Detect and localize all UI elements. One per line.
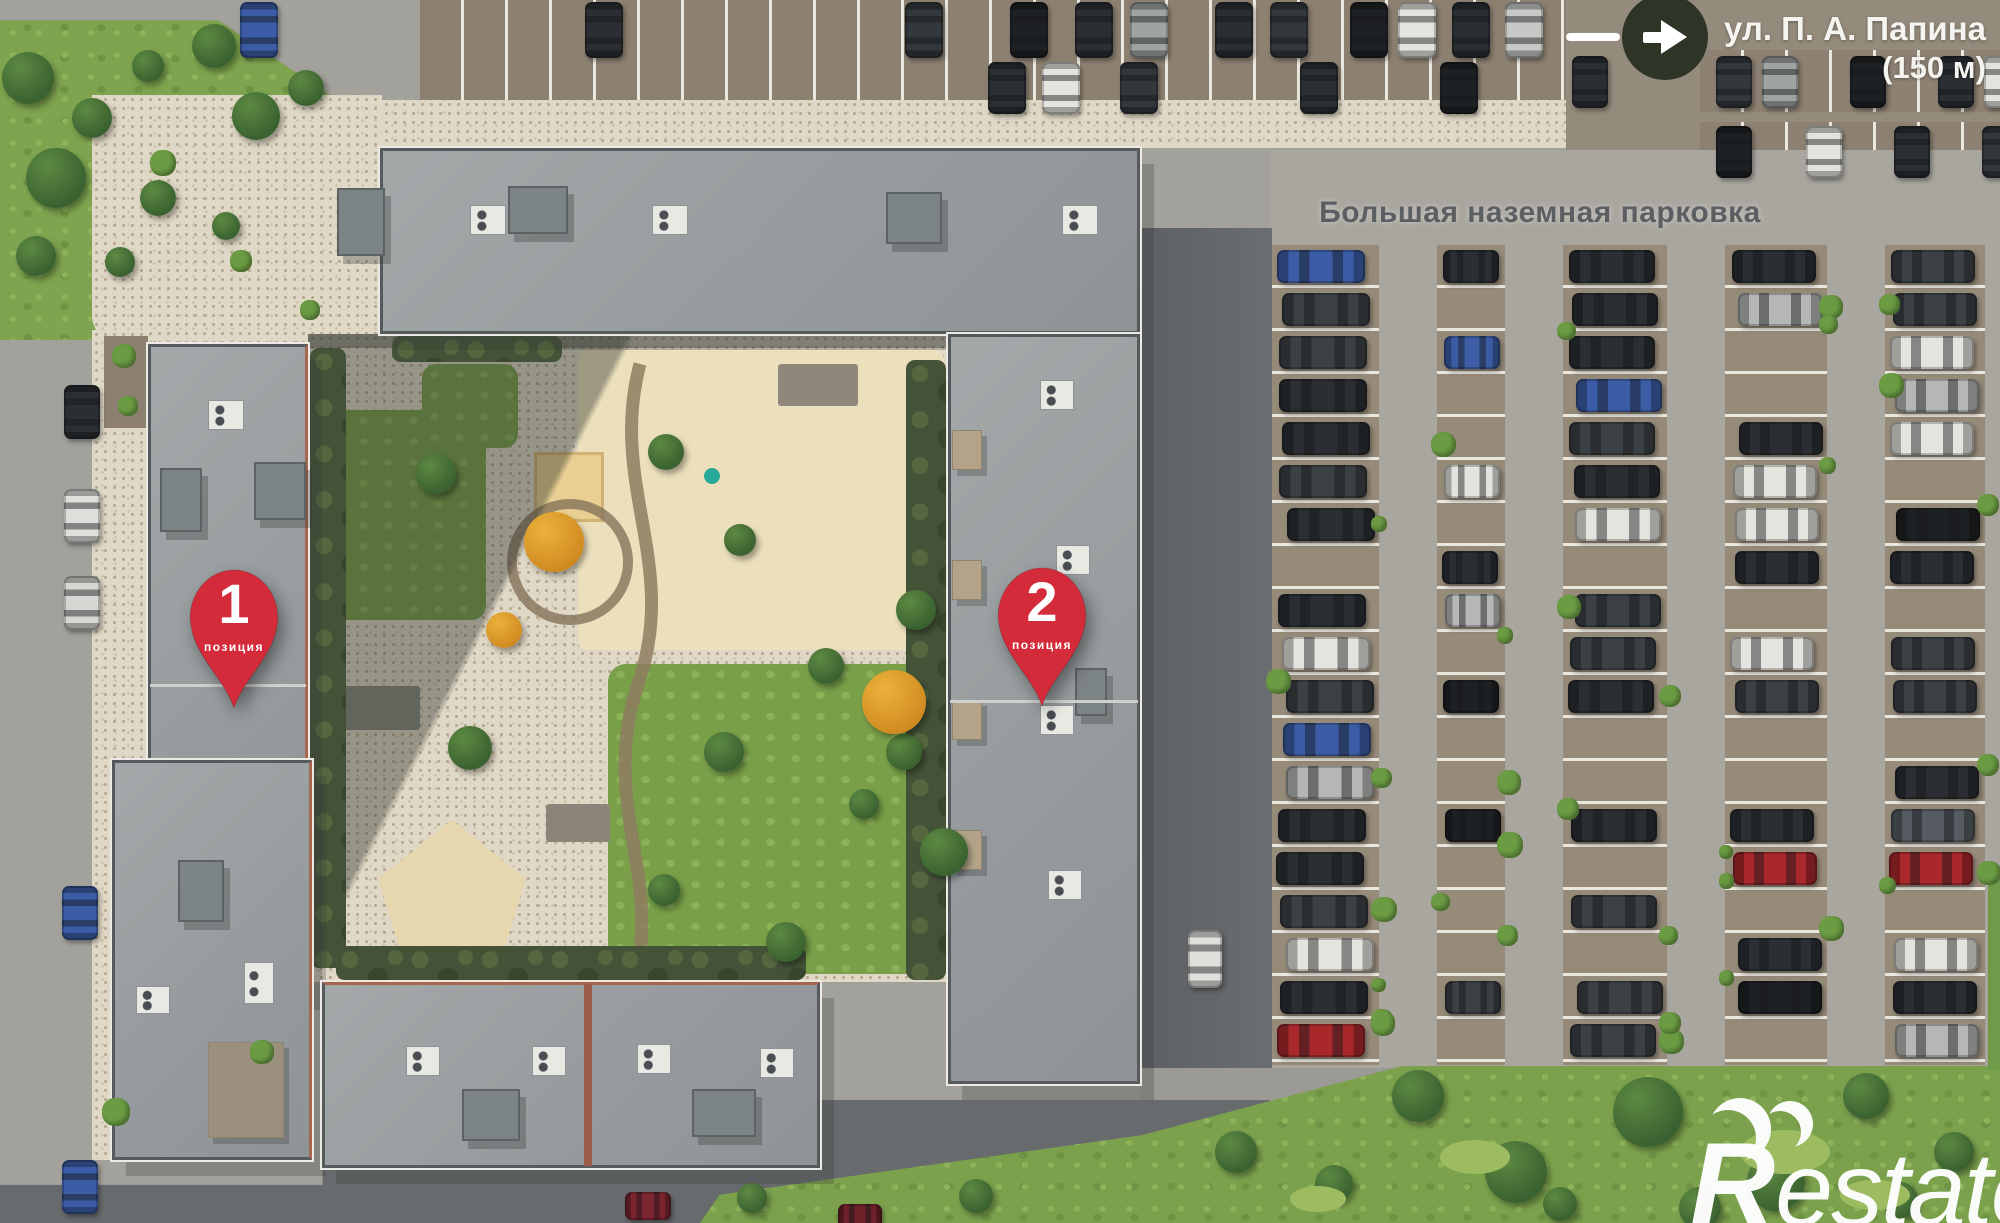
bush (1431, 432, 1456, 457)
bush (1659, 685, 1681, 707)
bush (1266, 669, 1291, 694)
rooftop-hvac (1040, 380, 1074, 410)
car (1730, 637, 1814, 670)
rooftop-penthouse (254, 462, 306, 520)
grass-light-patch (1440, 1140, 1510, 1174)
car (1738, 938, 1822, 971)
car (1733, 852, 1817, 885)
bush (1557, 322, 1576, 341)
car (1738, 293, 1822, 326)
bush (1371, 978, 1386, 993)
bush (1497, 925, 1518, 946)
car (1577, 981, 1663, 1014)
car (1130, 2, 1168, 58)
car (1279, 379, 1367, 412)
bush (1659, 926, 1678, 945)
car (1570, 1024, 1656, 1057)
car (1893, 680, 1977, 713)
pin-number: 1 (184, 576, 284, 632)
tree (416, 454, 456, 494)
hedge-east (906, 360, 946, 980)
tree (704, 732, 744, 772)
tree (105, 247, 135, 277)
car (1984, 56, 2000, 108)
rooftop-hvac (652, 205, 688, 235)
car (1350, 2, 1388, 58)
car (64, 489, 100, 543)
tree (72, 98, 112, 138)
car (1569, 336, 1655, 369)
bush (300, 300, 320, 320)
courtyard (308, 334, 948, 982)
car (1575, 594, 1661, 627)
rooftop-hvac (1040, 705, 1074, 735)
car (585, 2, 623, 58)
car (1444, 465, 1500, 498)
bush (1819, 916, 1844, 941)
tree (896, 590, 936, 630)
car (1890, 336, 1974, 369)
rooftop-terrace (952, 700, 982, 740)
car (1894, 126, 1930, 178)
car (1010, 2, 1048, 58)
rooftop-terrace (952, 560, 982, 600)
bush (1719, 873, 1734, 888)
tree-orange (524, 512, 584, 572)
car (1572, 56, 1608, 108)
car (1505, 2, 1543, 58)
tree (16, 236, 56, 276)
car (1215, 2, 1253, 58)
tree (140, 180, 176, 216)
rooftop-hvac (208, 400, 244, 430)
rooftop-hvac (406, 1046, 440, 1076)
car (1452, 2, 1490, 58)
play-equipment-dot (704, 468, 720, 484)
car (64, 385, 100, 439)
car (1445, 981, 1501, 1014)
arrow-head (1661, 20, 1687, 54)
bush (1819, 457, 1836, 474)
car (1733, 465, 1817, 498)
rooftop-penthouse (160, 468, 202, 532)
car (1445, 809, 1501, 842)
car (1287, 508, 1375, 541)
pin-caption: позиция (184, 640, 284, 654)
bush (1497, 627, 1513, 643)
grass-sliver-right-edge (1988, 880, 2000, 1070)
brand-watermark-text: Restate (1690, 1126, 2000, 1223)
car (1042, 62, 1080, 114)
direction-line (1566, 33, 1620, 41)
car (1982, 126, 2000, 178)
tree (737, 1183, 767, 1213)
bush (102, 1098, 130, 1126)
walkway-top-band (382, 100, 1566, 148)
car (1443, 680, 1499, 713)
car (1286, 766, 1374, 799)
car (1572, 293, 1658, 326)
tree (648, 434, 684, 470)
car (1188, 930, 1222, 988)
car (1277, 250, 1365, 283)
car (1895, 379, 1979, 412)
rooftop-hvac (532, 1046, 566, 1076)
car (1278, 809, 1366, 842)
car (1891, 637, 1975, 670)
car (1283, 723, 1371, 756)
tree (132, 50, 164, 82)
car (1735, 508, 1819, 541)
tree-orange (486, 612, 522, 648)
car (1895, 1024, 1979, 1057)
bush (1879, 877, 1896, 894)
map-pin-position-2[interactable]: 2 позиция (992, 558, 1092, 708)
tree (724, 524, 756, 556)
car (1893, 293, 1977, 326)
rooftop-penthouse (886, 192, 942, 244)
bush (1977, 754, 1999, 776)
car (1440, 62, 1478, 114)
car (1568, 680, 1654, 713)
car (1279, 336, 1367, 369)
bush (1371, 768, 1392, 789)
tree (920, 828, 968, 876)
building-roof-top-bar (380, 148, 1140, 334)
car (1893, 981, 1977, 1014)
bush (1977, 494, 1999, 516)
tree (192, 24, 236, 68)
tree (1613, 1077, 1683, 1147)
tree (232, 92, 280, 140)
bush (1371, 897, 1397, 923)
tree (2, 52, 54, 104)
map-pin-position-1[interactable]: 1 позиция (184, 560, 284, 710)
roof-red-divider (584, 984, 592, 1166)
bush (1879, 294, 1900, 315)
brand-logo-letter: R (1690, 1119, 1775, 1223)
car (1120, 62, 1158, 114)
site-plan-map: ул. П. А. Папина (150 м) Большая наземна… (0, 0, 2000, 1223)
car (1735, 680, 1819, 713)
car (1443, 250, 1499, 283)
tree (26, 148, 86, 208)
car (1398, 2, 1436, 58)
brand-text-rest: estate (1775, 1132, 2000, 1223)
street-sign-label: ул. П. А. Папина (150 м) (1686, 10, 1986, 86)
rooftop-hvac (1048, 870, 1082, 900)
rooftop-hvac (1062, 205, 1098, 235)
pin-number: 2 (992, 574, 1092, 630)
bush (1879, 373, 1904, 398)
car (1282, 637, 1370, 670)
building-roof-bottom-bar (322, 982, 820, 1168)
bush (1497, 832, 1523, 858)
tree (1543, 1187, 1577, 1221)
rooftop-penthouse (508, 186, 568, 234)
car (1278, 594, 1366, 627)
car (1891, 809, 1975, 842)
car (1282, 293, 1370, 326)
car (1574, 465, 1660, 498)
bush (112, 344, 136, 368)
car (988, 62, 1026, 114)
bush (1497, 770, 1521, 794)
car (1890, 422, 1974, 455)
hedge-north (392, 336, 562, 362)
car (1075, 2, 1113, 58)
car (1445, 594, 1501, 627)
tree (766, 922, 806, 962)
car (1282, 422, 1370, 455)
bush (150, 150, 176, 176)
car (1270, 2, 1308, 58)
street-distance-text: (150 м) (1686, 50, 1986, 86)
car (1889, 852, 1973, 885)
tree (1392, 1070, 1444, 1122)
street-name-text: ул. П. А. Папина (1686, 10, 1986, 48)
car (838, 1204, 882, 1223)
car (1716, 126, 1752, 178)
car (1806, 126, 1842, 178)
bush (230, 250, 252, 272)
car (1280, 895, 1368, 928)
bush (1557, 595, 1581, 619)
brand-watermark: Restate (1690, 1092, 2000, 1223)
car (1730, 809, 1814, 842)
car (1895, 766, 1979, 799)
tree (448, 726, 492, 770)
building-shadow-on-courtyard (308, 334, 948, 982)
tree (808, 648, 844, 684)
building-top-west-wing (337, 188, 385, 256)
rooftop-terrace (952, 430, 982, 470)
rooftop-penthouse (692, 1089, 756, 1137)
car (240, 2, 278, 58)
rooftop-penthouse (462, 1089, 520, 1141)
car (1739, 422, 1823, 455)
car (1276, 852, 1364, 885)
car (62, 886, 98, 940)
tree (1215, 1131, 1257, 1173)
tree (849, 789, 879, 819)
bush (1557, 798, 1579, 820)
car (1575, 508, 1661, 541)
car (1569, 250, 1655, 283)
bush (1719, 845, 1733, 859)
car (1569, 422, 1655, 455)
car (1571, 809, 1657, 842)
hedge-west (310, 348, 346, 968)
car (1732, 250, 1816, 283)
tree (959, 1179, 993, 1213)
car (1279, 465, 1367, 498)
car (1894, 938, 1978, 971)
car (64, 576, 100, 630)
car (1300, 62, 1338, 114)
car (1890, 551, 1974, 584)
car (905, 2, 943, 58)
arrow-shaft (1643, 32, 1663, 43)
bush (118, 396, 138, 416)
tree-orange (862, 670, 926, 734)
tree (288, 70, 324, 106)
car (1570, 637, 1656, 670)
rooftop-hvac (244, 962, 274, 1004)
grass-light-patch (1290, 1186, 1346, 1212)
bush (1719, 970, 1734, 985)
bush (1431, 893, 1450, 912)
car (62, 1160, 98, 1214)
rooftop-hvac (470, 205, 506, 235)
car (1576, 379, 1662, 412)
rooftop-hvac (136, 986, 170, 1014)
rooftop-hvac (760, 1048, 794, 1078)
car (1444, 336, 1500, 369)
bush (1659, 1012, 1681, 1034)
tree (886, 734, 922, 770)
rooftop-hvac (637, 1044, 671, 1074)
car (1738, 981, 1822, 1014)
car (1286, 938, 1374, 971)
car (1286, 680, 1374, 713)
bush (1977, 861, 2000, 885)
shadowed-access-road (1140, 228, 1272, 1135)
hedge-south (336, 946, 806, 980)
car (1891, 250, 1975, 283)
tree (648, 874, 680, 906)
parking-area-label: Большая наземная парковка (1270, 196, 1810, 230)
car (1735, 551, 1819, 584)
car (625, 1192, 671, 1220)
car (1442, 551, 1498, 584)
rooftop-penthouse (178, 860, 224, 922)
bush (1371, 516, 1387, 532)
car (1896, 508, 1980, 541)
car (1280, 981, 1368, 1014)
tree (212, 212, 240, 240)
car (1277, 1024, 1365, 1057)
pin-caption: позиция (992, 638, 1092, 652)
bush (1371, 1011, 1395, 1035)
bush (250, 1040, 274, 1064)
car (1571, 895, 1657, 928)
